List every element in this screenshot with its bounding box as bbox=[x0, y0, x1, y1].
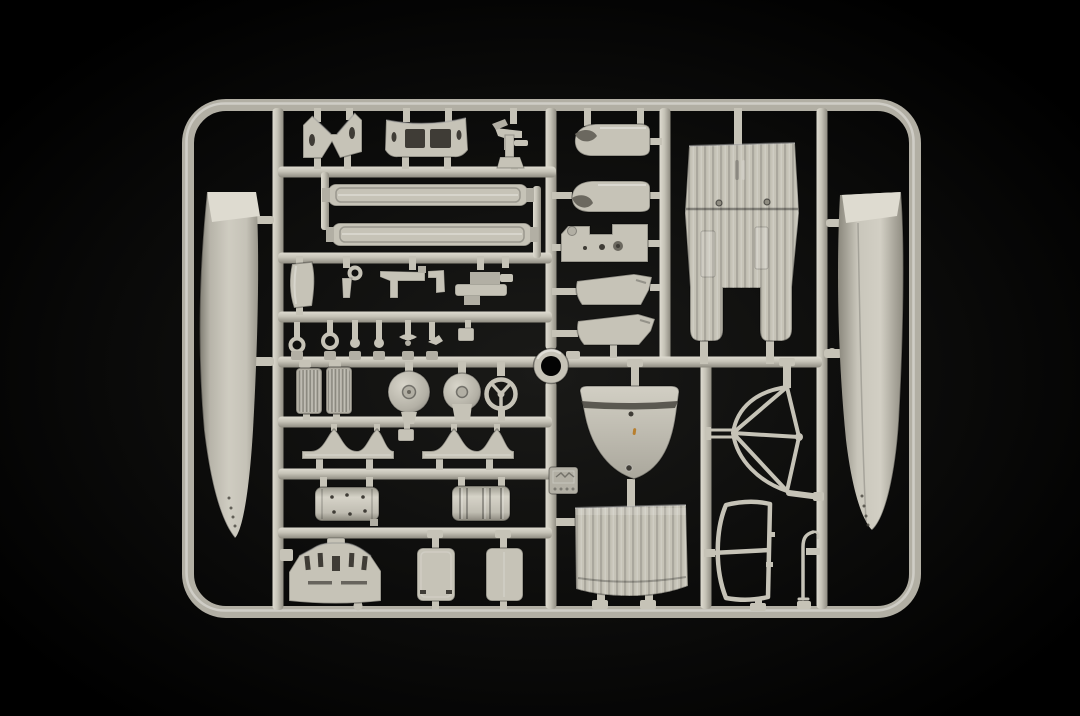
sprue-photo: sprue-frame-runner bbox=[0, 0, 1080, 716]
part-wing-spar-lower: wing-spar-lower bbox=[326, 223, 538, 246]
runner-horizontal bbox=[278, 469, 552, 480]
part-smooth-tank-cylinder: smooth-tank-cylinder bbox=[315, 487, 379, 526]
part-runner-ring: runner-ring bbox=[534, 349, 569, 384]
part-ribbed-tank-cylinder: ribbed-tank-cylinder bbox=[452, 486, 510, 521]
part-radiator-grille-left: radiator-grille-left bbox=[296, 368, 322, 414]
runner-horizontal bbox=[278, 312, 552, 323]
part-mold-logo-stamp: mold-logo-stamp bbox=[549, 467, 578, 494]
part-cabin-door-left: cabin-door-left bbox=[417, 548, 455, 601]
part-wing-spar-upper: wing-spar-upper bbox=[322, 184, 534, 206]
part-windowed-cabin-bulkhead: windowed-cabin-bulkhead bbox=[385, 118, 468, 157]
part-curved-fairing-sheet: curved-fairing-sheet bbox=[290, 262, 314, 308]
part-cowling-half-lower: cowling-half-lower bbox=[572, 181, 650, 212]
part-radiator-grille-right: radiator-grille-right bbox=[326, 367, 352, 414]
part-cowling-half-upper: cowling-half-upper bbox=[575, 124, 650, 156]
runner-vertical bbox=[660, 108, 671, 366]
part-cabin-door-right: cabin-door-right bbox=[486, 548, 523, 601]
part-corrugated-hatch-panel: corrugated-hatch-panel bbox=[575, 505, 688, 596]
runner-connector bbox=[533, 186, 541, 258]
runner-vertical bbox=[701, 360, 712, 609]
runner-vertical bbox=[546, 381, 557, 609]
